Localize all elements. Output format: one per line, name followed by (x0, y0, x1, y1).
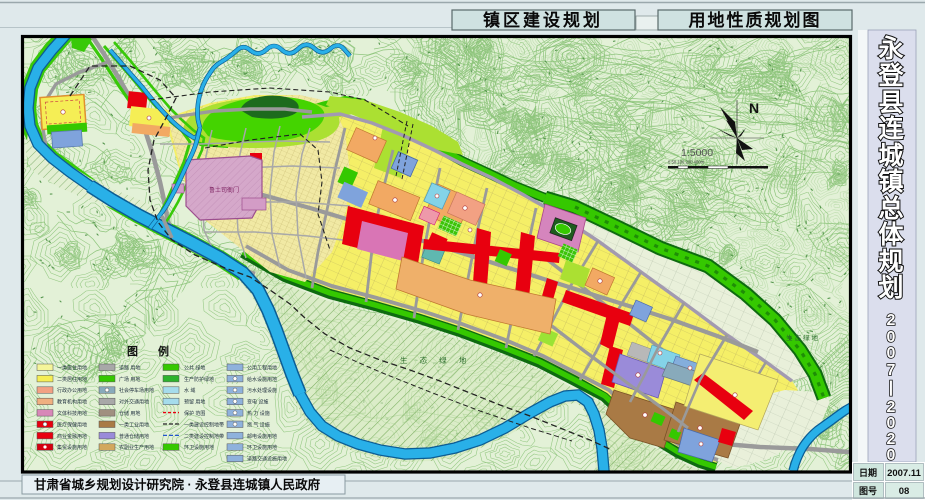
svg-text:一类居住用地: 一类居住用地 (57, 364, 87, 371)
svg-text:商业金融用地: 商业金融用地 (57, 433, 87, 440)
svg-text:甘肃省城乡规划设计研究院 · 永登县连城镇人民政府: 甘肃省城乡规划设计研究院 · 永登县连城镇人民政府 (34, 477, 321, 492)
svg-text:0: 0 (887, 447, 896, 464)
svg-text:0 50 100 200 400m: 0 50 100 200 400m (668, 160, 705, 165)
svg-text:镇: 镇 (878, 168, 903, 196)
svg-text:用地性质规划图: 用地性质规划图 (689, 10, 822, 30)
svg-text:环卫设施用地: 环卫设施用地 (247, 444, 277, 451)
svg-text:2: 2 (887, 312, 896, 329)
svg-text:永: 永 (878, 35, 903, 63)
svg-text:社会停车场用地: 社会停车场用地 (119, 387, 154, 394)
svg-text:规: 规 (878, 248, 903, 276)
svg-text:普通仓储用地: 普通仓储用地 (119, 433, 149, 440)
svg-text:0: 0 (887, 329, 896, 346)
svg-text:2: 2 (887, 399, 896, 416)
svg-text:行政办公用地: 行政办公用地 (57, 387, 87, 394)
svg-text:丨: 丨 (883, 380, 899, 398)
svg-text:二类居住用地: 二类居住用地 (57, 376, 87, 383)
svg-text:环卫设施用地: 环卫设施用地 (184, 444, 214, 451)
svg-text:预留 用地: 预留 用地 (184, 399, 205, 406)
svg-text:热 力 设施: 热 力 设施 (247, 410, 270, 417)
svg-text:一类建设控制地带: 一类建设控制地带 (184, 421, 224, 428)
svg-text:集贸设施用地: 集贸设施用地 (57, 444, 87, 451)
svg-text:道路 用地: 道路 用地 (119, 364, 140, 371)
svg-text:县: 县 (878, 89, 903, 117)
svg-text:图例: 图例 (127, 344, 189, 358)
svg-text:公用工程用地: 公用工程用地 (247, 364, 277, 371)
svg-text:文体科技用地: 文体科技用地 (57, 410, 87, 417)
svg-text:08: 08 (899, 486, 910, 497)
svg-text:保护 范围: 保护 范围 (184, 410, 205, 417)
svg-text:变电 设施: 变电 设施 (247, 399, 268, 406)
svg-text:仓储 用地: 仓储 用地 (119, 410, 140, 417)
svg-text:连: 连 (878, 115, 904, 143)
svg-text:生产防护绿地: 生产防护绿地 (184, 376, 214, 383)
svg-text:总: 总 (878, 195, 903, 223)
svg-text:城: 城 (878, 142, 903, 170)
svg-text:7: 7 (887, 362, 896, 379)
svg-text:2007.11: 2007.11 (887, 468, 922, 479)
svg-text:划: 划 (878, 274, 903, 302)
svg-text:1:5000: 1:5000 (681, 147, 713, 159)
svg-text:医疗保健用地: 医疗保健用地 (57, 421, 87, 428)
svg-text:2: 2 (887, 431, 896, 448)
svg-text:登: 登 (877, 61, 904, 90)
svg-text:N: N (749, 100, 759, 116)
svg-text:农副业生产用地: 农副业生产用地 (119, 444, 154, 451)
svg-text:图号: 图号 (859, 486, 877, 496)
svg-text:污水处理设施: 污水处理设施 (247, 387, 277, 394)
svg-text:镇区建设规划: 镇区建设规划 (483, 10, 603, 30)
svg-text:二类建设控制地带: 二类建设控制地带 (184, 433, 224, 440)
svg-text:公共 绿地: 公共 绿地 (184, 364, 205, 371)
svg-text:给水设施用地: 给水设施用地 (247, 376, 277, 383)
svg-text:教育机构用地: 教育机构用地 (57, 399, 87, 406)
svg-text:日期: 日期 (859, 467, 877, 478)
svg-text:0: 0 (887, 415, 896, 432)
svg-text:燃 气 设施: 燃 气 设施 (247, 421, 270, 428)
svg-text:鲁土司衙门: 鲁土司衙门 (209, 186, 239, 194)
svg-text:道路交通设施用地: 道路交通设施用地 (247, 456, 287, 463)
svg-text:一类工业用地: 一类工业用地 (119, 421, 149, 428)
svg-text:0: 0 (887, 345, 896, 362)
svg-text:体: 体 (878, 221, 904, 249)
svg-text:生 态 绿 地: 生 态 绿 地 (400, 355, 471, 365)
svg-text:生态绿地: 生态绿地 (786, 333, 820, 342)
svg-text:广场 用地: 广场 用地 (119, 376, 140, 383)
svg-text:邮电设施用地: 邮电设施用地 (247, 433, 277, 440)
svg-text:对外交通用地: 对外交通用地 (119, 399, 149, 406)
svg-text:水 域: 水 域 (184, 387, 195, 394)
